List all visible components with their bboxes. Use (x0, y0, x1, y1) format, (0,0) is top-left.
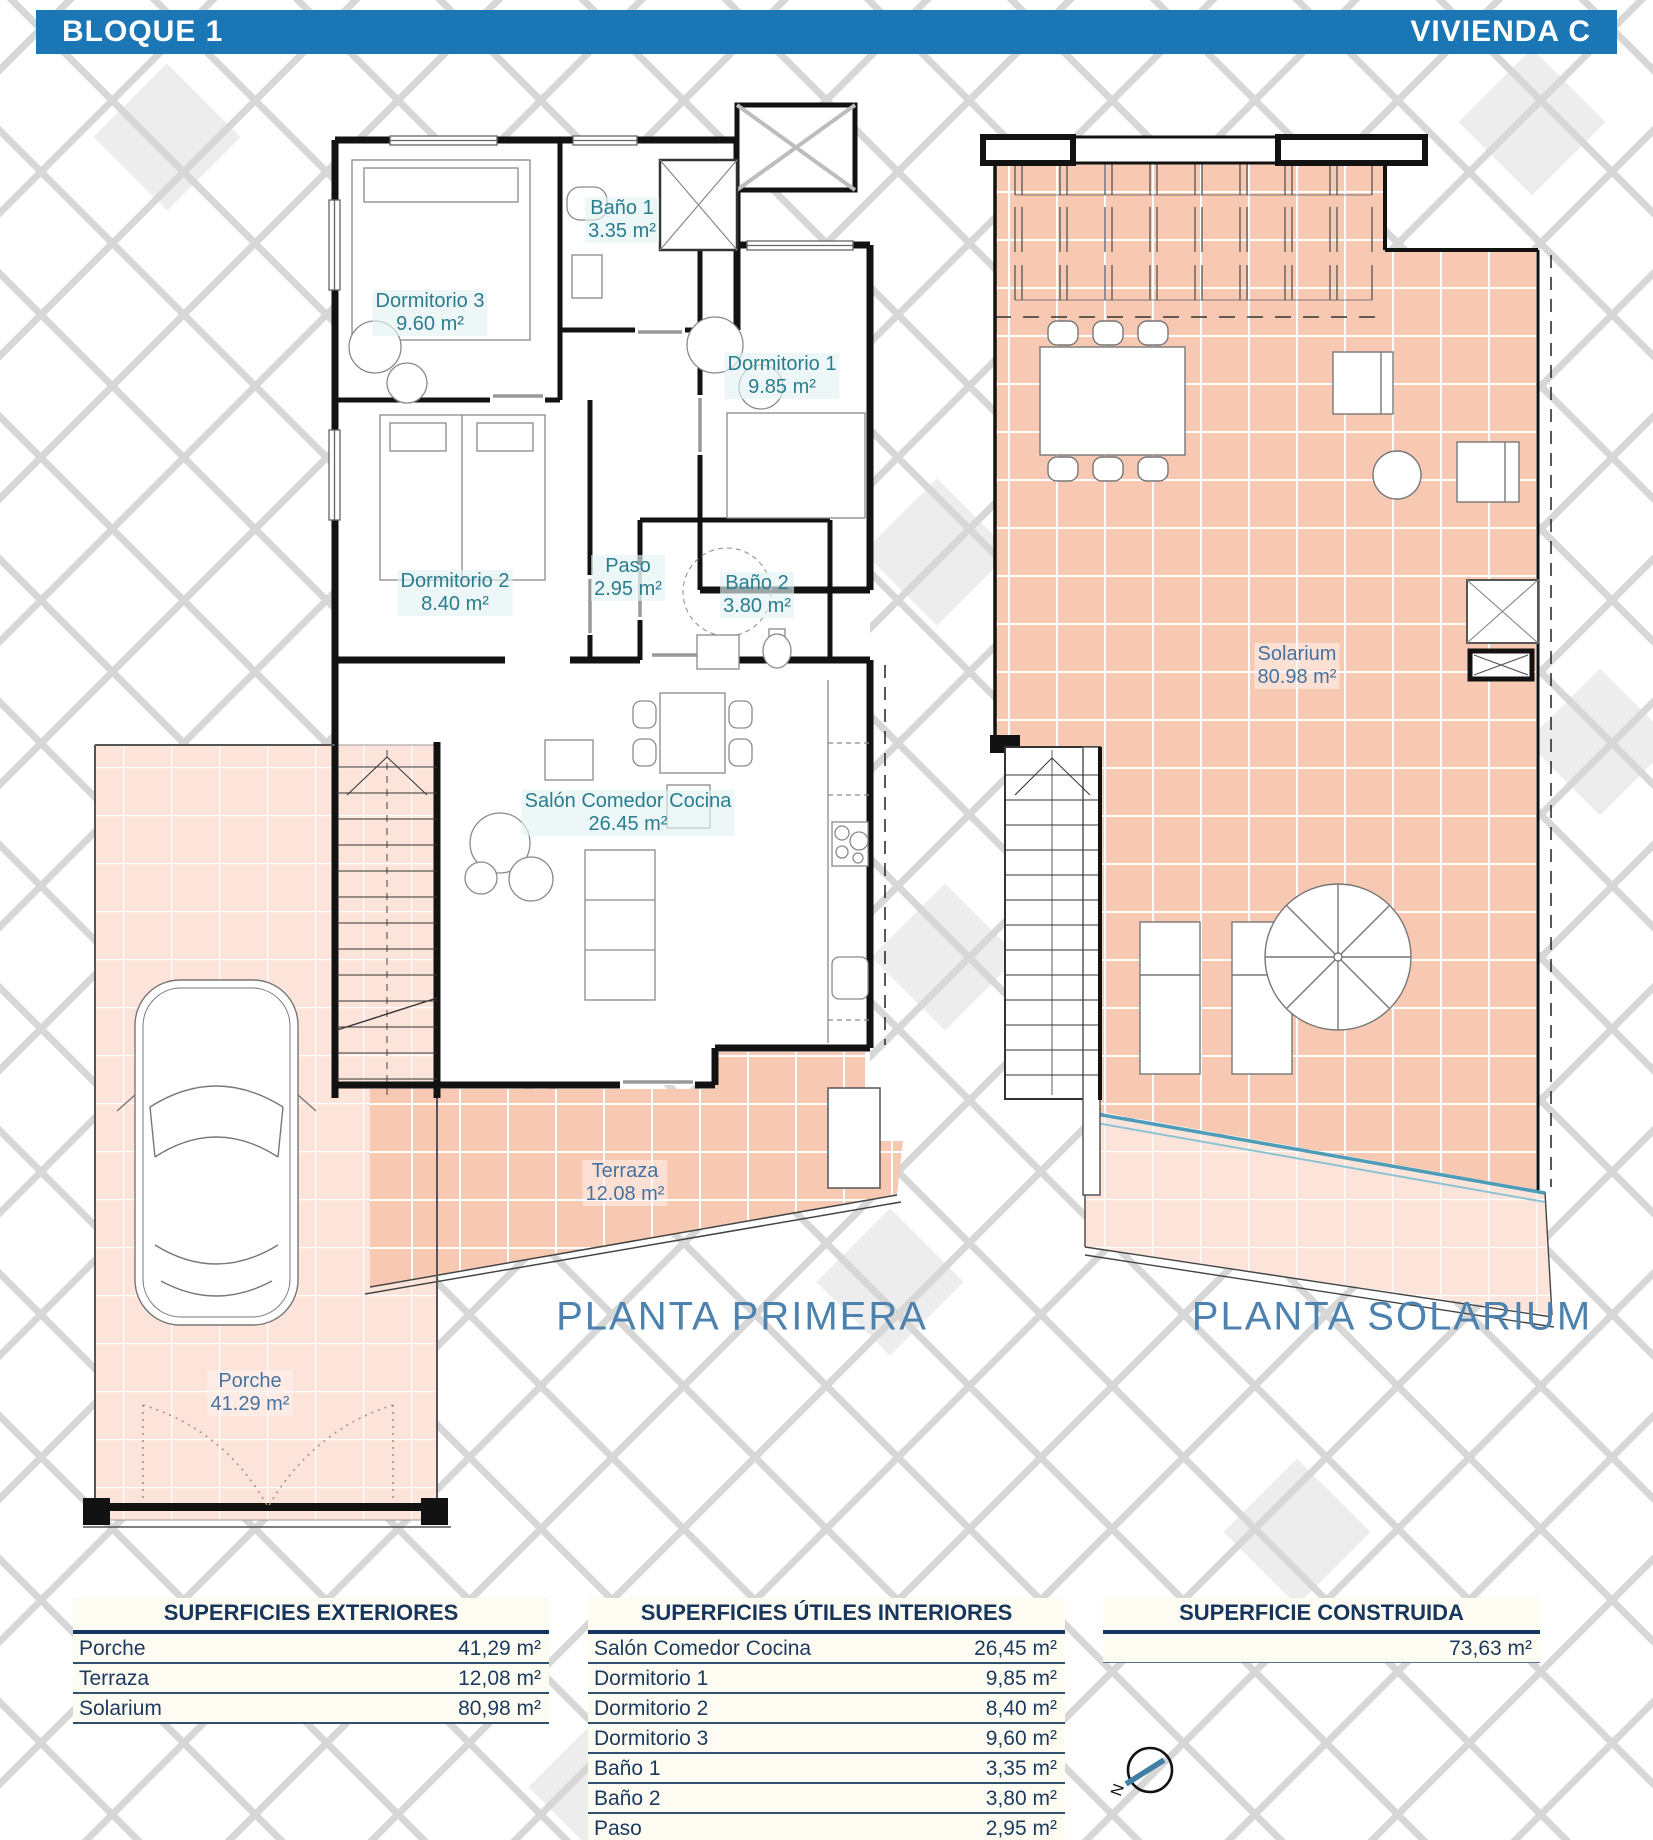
table-row: Dormitorio 3 9,60 m² (588, 1724, 1065, 1754)
room-label-porche: Porche 41.29 m² (208, 1370, 293, 1416)
table-row: Terraza 12,08 m² (73, 1664, 549, 1694)
table-row: Porche 41,29 m² (73, 1634, 549, 1664)
room-label-solarium: Solarium 80.98 m² (1255, 643, 1340, 689)
plan-title-solarium: PLANTA SOLARIUM (1192, 1295, 1592, 1340)
plan-title-primera: PLANTA PRIMERA (556, 1295, 928, 1340)
room-label-dormitorio3: Dormitorio 3 9.60 m² (373, 290, 488, 336)
stairs (1005, 747, 1100, 1195)
lattice-diamond (1223, 1458, 1370, 1605)
table-superficie-construida: SUPERFICIE CONSTRUIDA 73,63 m² (1103, 1598, 1540, 1663)
floorplan-sheet: BLOQUE 1 VIVIENDA C (0, 0, 1653, 1840)
table-header: SUPERFICIE CONSTRUIDA (1103, 1598, 1540, 1634)
room-label-bano1: Baño 1 3.35 m² (585, 197, 659, 243)
table-header: SUPERFICIES ÚTILES INTERIORES (588, 1598, 1065, 1634)
north-compass: N (1108, 1732, 1192, 1816)
room-label-dormitorio2: Dormitorio 2 8.40 m² (398, 570, 513, 616)
title-bar: BLOQUE 1 VIVIENDA C (36, 10, 1617, 54)
table-header: SUPERFICIES EXTERIORES (73, 1598, 549, 1634)
room-label-paso: Paso 2.95 m² (591, 555, 665, 601)
table-row: Salón Comedor Cocina 26,45 m² (588, 1634, 1065, 1664)
table-row: Baño 1 3,35 m² (588, 1754, 1065, 1784)
table-row: Dormitorio 1 9,85 m² (588, 1664, 1065, 1694)
plan-primera-drawing (75, 95, 905, 1565)
table-row: Baño 2 3,80 m² (588, 1784, 1065, 1814)
table-superficies-exteriores: SUPERFICIES EXTERIORES Porche 41,29 m² T… (73, 1598, 549, 1724)
room-label-dormitorio1: Dormitorio 1 9.85 m² (725, 353, 840, 399)
room-label-bano2: Baño 2 3.80 m² (720, 572, 794, 618)
north-label: N (1108, 1782, 1128, 1799)
table-row: 73,63 m² (1103, 1634, 1540, 1663)
plan-solarium-drawing (960, 95, 1600, 1385)
room-label-terraza: Terraza 12.08 m² (583, 1160, 668, 1206)
room-label-salon: Salón Comedor Cocina 26.45 m² (522, 790, 735, 836)
block-title: BLOQUE 1 (62, 15, 223, 49)
walls (983, 137, 1425, 163)
skylight (1467, 580, 1538, 679)
dwelling-title: VIVIENDA C (1410, 15, 1591, 49)
table-row: Paso 2,95 m² (588, 1814, 1065, 1840)
table-row: Dormitorio 2 8,40 m² (588, 1694, 1065, 1724)
table-superficies-interiores: SUPERFICIES ÚTILES INTERIORES Salón Come… (588, 1598, 1065, 1840)
car-top-view (117, 980, 316, 1325)
table-row: Solarium 80,98 m² (73, 1694, 549, 1724)
